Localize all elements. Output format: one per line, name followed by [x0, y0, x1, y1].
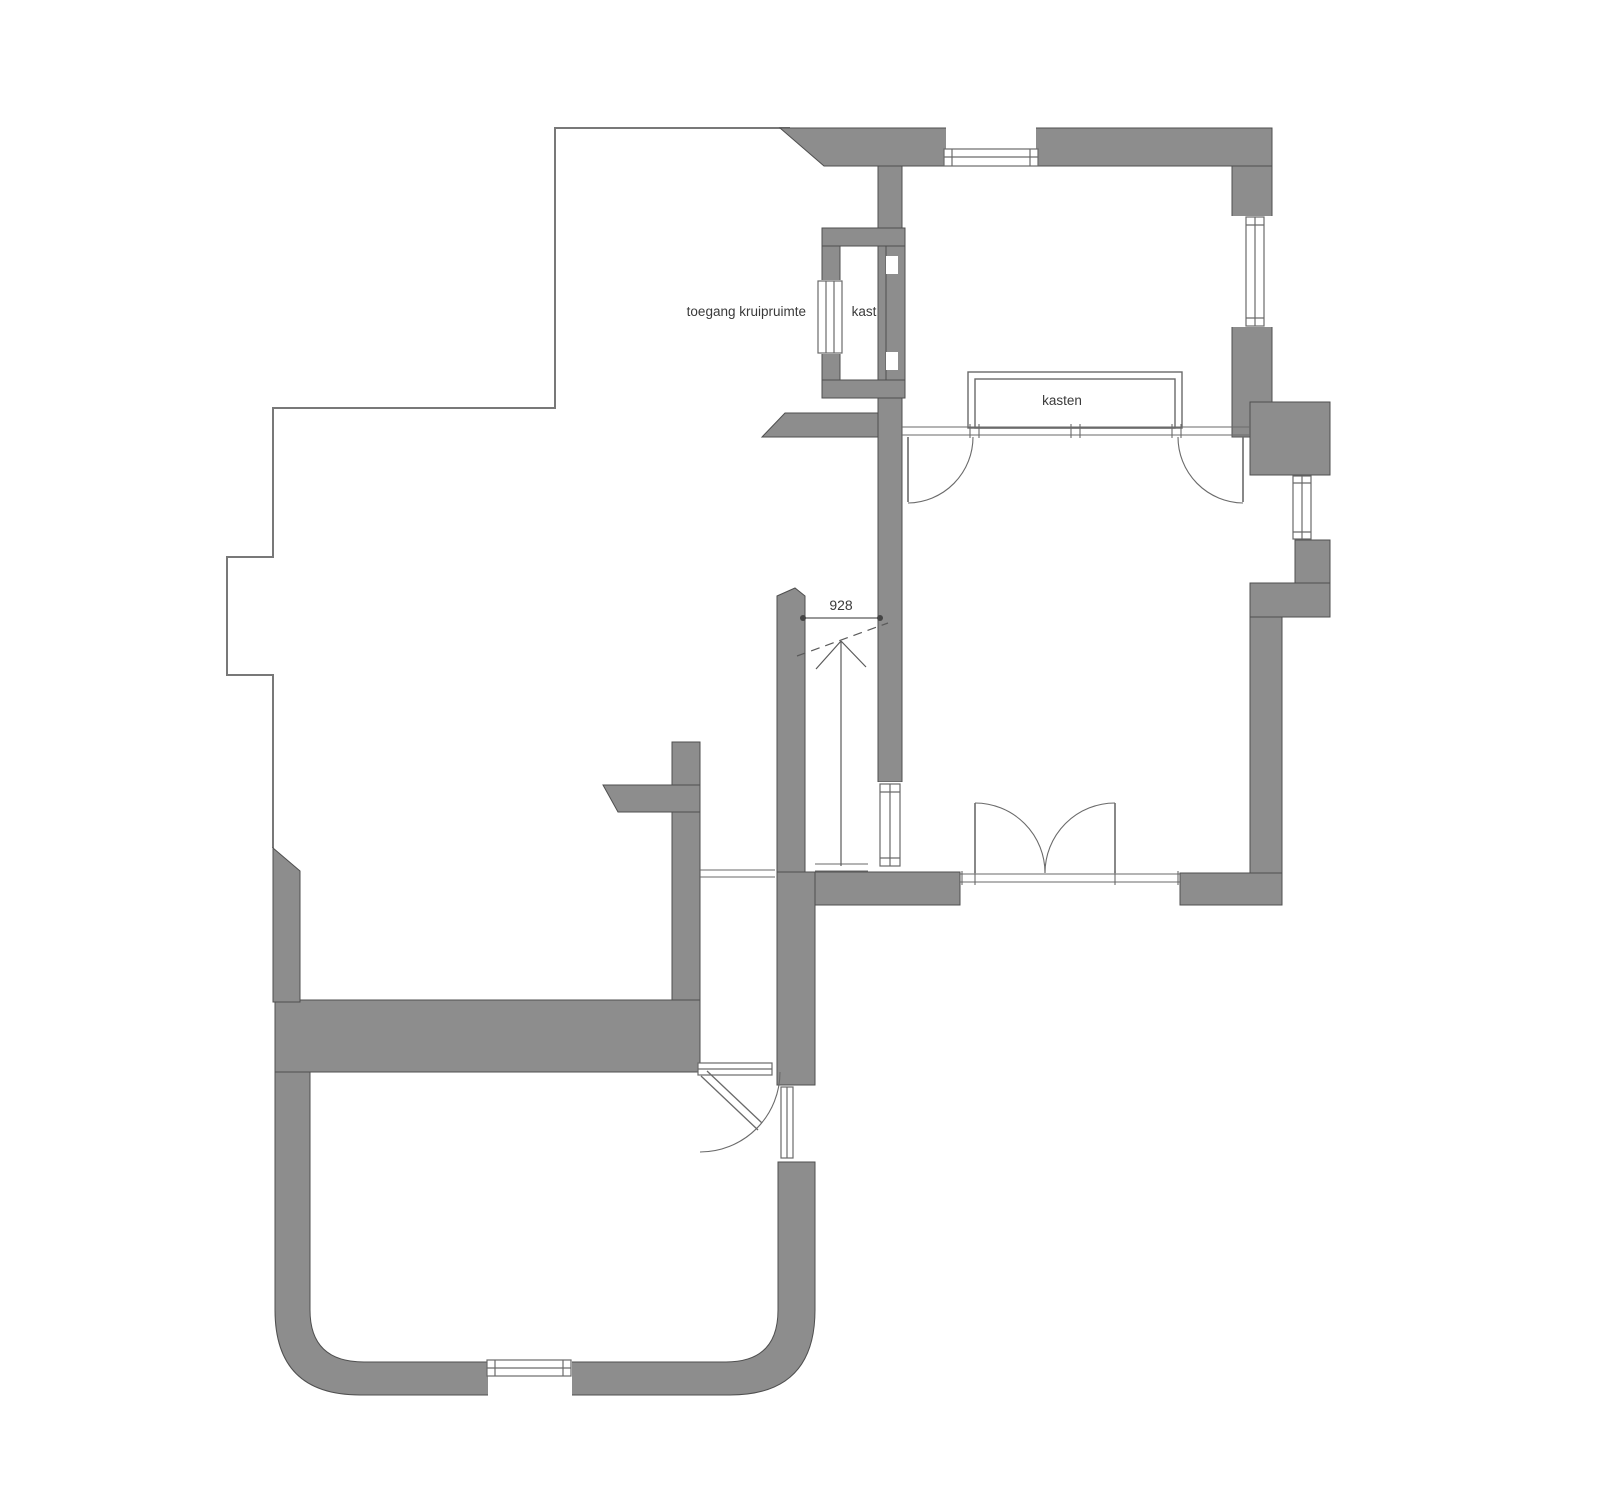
wall-stub-left-of-spine [762, 413, 878, 437]
window-bay [1293, 476, 1311, 539]
stair-arrow-right [841, 641, 866, 667]
existing-building-outline [227, 128, 790, 848]
door-kastenrow-right [1178, 437, 1243, 503]
stair [797, 623, 888, 866]
wall-garage-top-band [275, 1000, 700, 1072]
wall-corridor-left [672, 742, 700, 1005]
wall-bottom-right [1180, 873, 1282, 905]
floor-plan: 928 toegang kruipruimte kast kasten [0, 0, 1600, 1496]
frame-crawlspace-hatch [818, 281, 842, 353]
door-french-left [975, 803, 1045, 873]
wall-right-lower [1250, 617, 1282, 905]
window-top-wall [944, 149, 1038, 166]
floor-plan-page: 928 toegang kruipruimte kast kasten [0, 0, 1600, 1496]
dimension-dot-right [877, 615, 883, 621]
dimension-stair-width: 928 [800, 597, 883, 621]
window-spine-gap-frame [880, 784, 900, 866]
wall-corridor-right [777, 872, 815, 1085]
label-kast: kast [852, 304, 877, 319]
opening-closet-notch-bottom [886, 352, 898, 370]
door-french-right [1045, 803, 1115, 873]
door-entry [700, 1071, 780, 1152]
window-right-upper [1246, 217, 1264, 326]
wall-closet-left-upper [822, 246, 840, 282]
door-row-under-kasten [902, 424, 1250, 438]
wall-stair-left [777, 588, 805, 872]
wall-bay-bottom [1295, 540, 1330, 583]
label-crawlspace-access: toegang kruipruimte [687, 304, 806, 319]
wall-closet-bottom [822, 380, 905, 398]
wall-right-upper-a [1232, 166, 1272, 217]
label-kasten: kasten [1042, 393, 1082, 408]
dimension-label: 928 [829, 597, 853, 613]
wall-corridor-stub [603, 785, 700, 812]
corridor-threshold [700, 870, 775, 877]
french-door-threshold [960, 871, 1180, 885]
window-garage [487, 1360, 571, 1376]
opening-closet-notch-top [886, 256, 898, 274]
wall-bay-top [1250, 402, 1330, 475]
outline-path [227, 128, 790, 848]
wall-garage-ring [275, 1072, 815, 1395]
wall-left-transition [273, 848, 300, 1002]
wall-under-stair [812, 872, 960, 905]
dimension-dot-left [800, 615, 806, 621]
door-kastenrow-left [908, 437, 973, 503]
stair-cut-line [797, 623, 888, 656]
wall-closet-top [822, 228, 905, 246]
frame-side-doorway [781, 1087, 793, 1158]
wall-bay-closure [1250, 583, 1330, 617]
